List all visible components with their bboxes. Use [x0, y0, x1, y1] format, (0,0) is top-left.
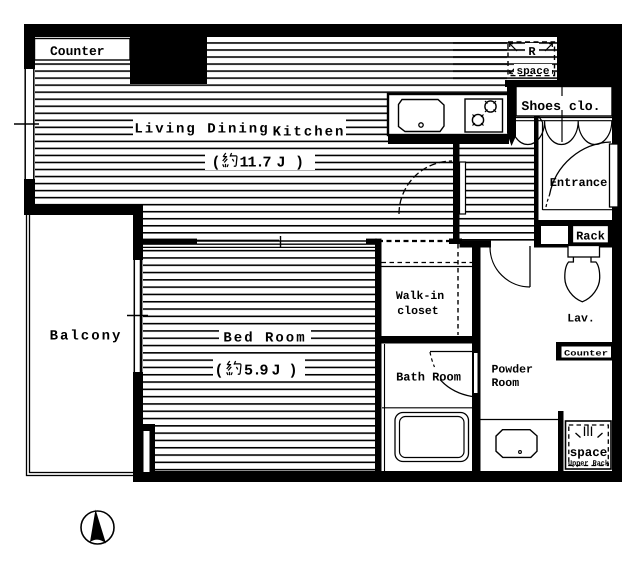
- svg-text:Balcony: Balcony: [50, 329, 123, 345]
- svg-text:Kitchen: Kitchen: [273, 125, 346, 141]
- svg-text:J: J: [272, 363, 281, 380]
- svg-text:R: R: [528, 45, 536, 59]
- svg-text:Bath Room: Bath Room: [396, 371, 461, 385]
- svg-text:Shoes clo.: Shoes clo.: [521, 99, 600, 114]
- svg-text:Walk-in: Walk-in: [396, 290, 444, 303]
- svg-text:space: space: [570, 446, 608, 460]
- svg-text:): ): [289, 363, 298, 380]
- svg-text:J: J: [277, 155, 286, 172]
- svg-text:space: space: [516, 66, 549, 78]
- svg-text:Upper Rack: Upper Rack: [568, 460, 609, 469]
- svg-text:Entrance: Entrance: [550, 176, 608, 190]
- svg-text:): ): [295, 155, 304, 172]
- svg-text:Powder: Powder: [492, 364, 534, 377]
- svg-text:(: (: [215, 363, 224, 380]
- svg-text:Living Dining: Living Dining: [134, 122, 269, 138]
- svg-text:Rack: Rack: [576, 230, 605, 244]
- svg-text:9: 9: [260, 363, 269, 380]
- svg-text:Room: Room: [492, 377, 520, 390]
- svg-text:Counter: Counter: [564, 350, 608, 359]
- svg-text:Counter: Counter: [50, 44, 105, 59]
- svg-text:(: (: [212, 155, 221, 172]
- svg-text:Bed Room: Bed Room: [223, 331, 306, 347]
- svg-text:Lav.: Lav.: [567, 313, 595, 326]
- svg-text:7: 7: [263, 155, 272, 172]
- svg-text:closet: closet: [397, 305, 438, 318]
